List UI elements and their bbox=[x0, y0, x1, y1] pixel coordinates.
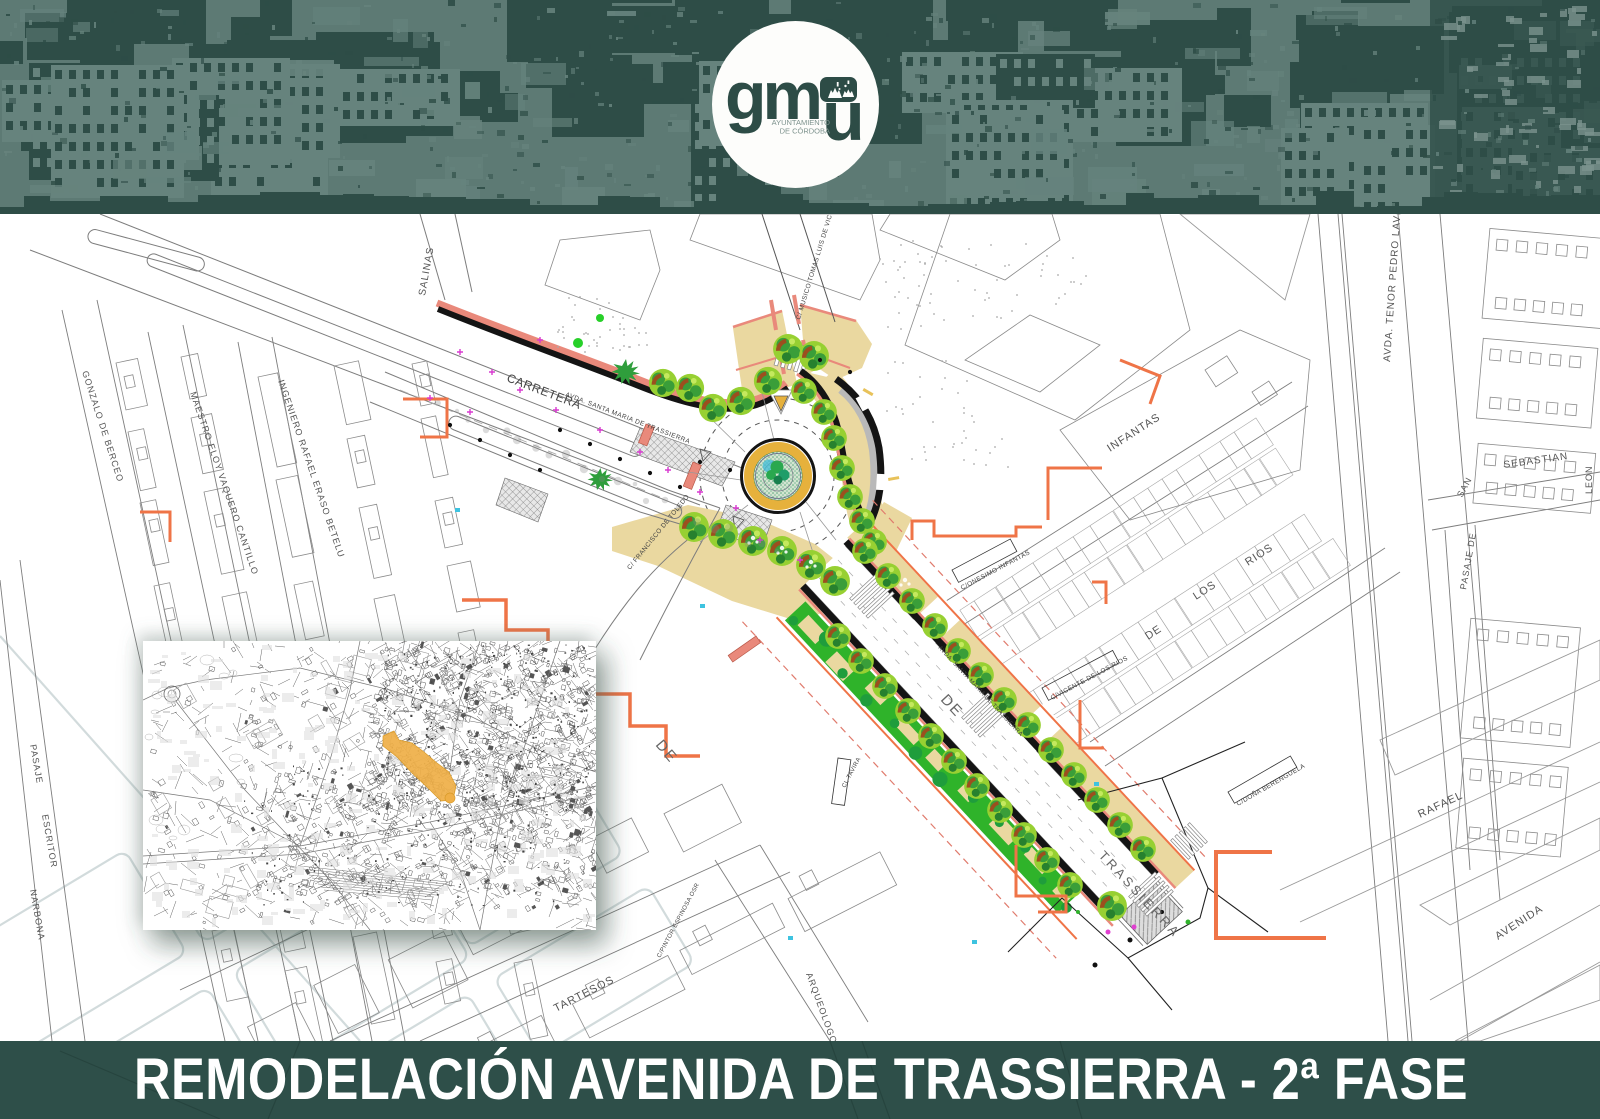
svg-text:LEON: LEON bbox=[1584, 465, 1594, 494]
svg-text:DE CÓRDOBA: DE CÓRDOBA bbox=[780, 127, 830, 136]
